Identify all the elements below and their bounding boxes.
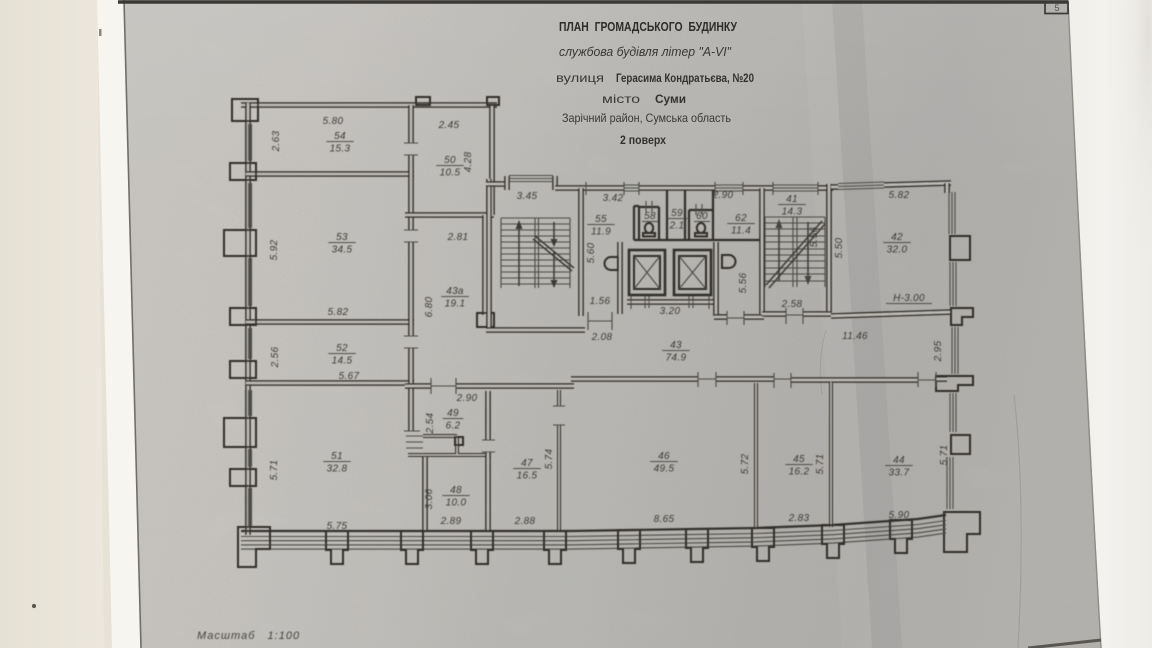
svg-text:10.0: 10.0 — [446, 498, 467, 509]
svg-text:2.45: 2.45 — [438, 120, 460, 131]
svg-text:45: 45 — [793, 454, 805, 465]
svg-text:14.3: 14.3 — [782, 207, 803, 218]
svg-text:5.56: 5.56 — [738, 273, 749, 294]
svg-text:2.90: 2.90 — [456, 393, 478, 404]
svg-text:5.56: 5.56 — [809, 227, 820, 248]
svg-text:5.67: 5.67 — [339, 371, 360, 382]
svg-text:1.56: 1.56 — [590, 296, 611, 307]
svg-text:53: 53 — [336, 232, 348, 243]
svg-text:Суми: Суми — [655, 92, 686, 106]
svg-text:11.9: 11.9 — [591, 227, 611, 238]
svg-text:5.71: 5.71 — [269, 460, 280, 481]
svg-text:32.0: 32.0 — [887, 245, 908, 256]
svg-text:19.1: 19.1 — [445, 299, 466, 310]
svg-text:5.80: 5.80 — [323, 116, 344, 127]
svg-text:50: 50 — [444, 155, 456, 166]
svg-text:5: 5 — [1054, 3, 1059, 13]
svg-text:8.65: 8.65 — [654, 514, 675, 525]
svg-text:3.06: 3.06 — [424, 489, 435, 510]
svg-text:Масштаб 1:100: Масштаб 1:100 — [197, 630, 300, 642]
svg-text:2.81: 2.81 — [447, 232, 469, 243]
svg-text:5.71: 5.71 — [815, 454, 826, 475]
svg-text:62: 62 — [735, 213, 747, 224]
svg-text:5.60: 5.60 — [586, 243, 597, 264]
svg-text:48: 48 — [450, 485, 462, 496]
svg-text:5.82: 5.82 — [889, 190, 910, 201]
svg-text:33.7: 33.7 — [889, 468, 910, 479]
svg-text:54: 54 — [334, 131, 346, 142]
svg-text:Зарічний район, Сумська област: Зарічний район, Сумська область — [562, 111, 731, 125]
svg-text:42: 42 — [891, 232, 903, 243]
svg-text:2.89: 2.89 — [440, 516, 462, 527]
svg-text:2.1: 2.1 — [669, 221, 685, 232]
svg-text:5.50: 5.50 — [834, 238, 845, 259]
svg-text:5.90: 5.90 — [889, 510, 910, 521]
svg-text:6.80: 6.80 — [424, 297, 435, 318]
svg-text:41: 41 — [786, 194, 798, 205]
svg-text:3.20: 3.20 — [660, 306, 681, 317]
svg-text:60: 60 — [696, 211, 708, 222]
svg-text:вулиця: вулиця — [556, 71, 604, 85]
svg-text:59: 59 — [671, 208, 683, 219]
svg-text:52: 52 — [336, 343, 348, 354]
svg-text:49: 49 — [447, 408, 459, 419]
svg-text:44: 44 — [893, 455, 905, 466]
svg-text:15.3: 15.3 — [330, 144, 351, 155]
svg-text:5.74: 5.74 — [544, 449, 555, 470]
svg-text:службова будівля літер "А-VI": службова будівля літер "А-VI" — [559, 45, 732, 59]
svg-text:51: 51 — [331, 451, 343, 462]
svg-text:6.2: 6.2 — [446, 421, 461, 432]
svg-text:2.95: 2.95 — [933, 341, 944, 363]
svg-text:5.72: 5.72 — [740, 454, 751, 475]
svg-text:місто: місто — [602, 92, 640, 106]
svg-text:11.4: 11.4 — [731, 226, 751, 237]
svg-text:16.2: 16.2 — [789, 467, 810, 478]
svg-text:58: 58 — [644, 211, 656, 222]
svg-text:2.08: 2.08 — [591, 332, 613, 343]
svg-text:2.56: 2.56 — [270, 347, 281, 369]
svg-text:3.42: 3.42 — [603, 193, 624, 204]
svg-text:2.88: 2.88 — [514, 516, 536, 527]
svg-text:5.71: 5.71 — [939, 445, 950, 466]
svg-text:Н-3.00: Н-3.00 — [893, 293, 925, 304]
svg-text:43а: 43а — [446, 286, 464, 297]
svg-text:34.5: 34.5 — [332, 245, 353, 256]
svg-text:32.8: 32.8 — [327, 464, 348, 475]
svg-text:5.75: 5.75 — [327, 521, 348, 532]
svg-text:10.5: 10.5 — [440, 168, 461, 179]
svg-text:2.90: 2.90 — [712, 190, 734, 201]
svg-text:ПЛАН ГРОМАДСЬКОГО БУДИНКУ: ПЛАН ГРОМАДСЬКОГО БУДИНКУ — [559, 20, 737, 34]
svg-text:16.5: 16.5 — [517, 471, 538, 482]
svg-text:47: 47 — [521, 458, 533, 469]
svg-text:43: 43 — [670, 340, 682, 351]
svg-text:2.83: 2.83 — [788, 513, 810, 524]
svg-text:4.28: 4.28 — [463, 152, 474, 173]
svg-text:11.46: 11.46 — [842, 331, 868, 342]
svg-text:5.92: 5.92 — [269, 240, 280, 261]
svg-text:49.5: 49.5 — [654, 464, 675, 475]
svg-text:5.82: 5.82 — [328, 307, 349, 318]
svg-text:2 поверх: 2 поверх — [620, 133, 666, 147]
svg-text:2.58: 2.58 — [781, 299, 803, 310]
svg-text:3.45: 3.45 — [517, 191, 538, 202]
svg-text:2.54: 2.54 — [425, 413, 436, 435]
svg-text:14.5: 14.5 — [332, 356, 353, 367]
svg-text:2.63: 2.63 — [271, 131, 282, 153]
svg-text:46: 46 — [658, 451, 670, 462]
svg-text:55: 55 — [595, 214, 607, 225]
svg-text:Герасима Кондратьєва, №20: Герасима Кондратьєва, №20 — [616, 71, 754, 85]
svg-text:74.9: 74.9 — [666, 353, 687, 364]
